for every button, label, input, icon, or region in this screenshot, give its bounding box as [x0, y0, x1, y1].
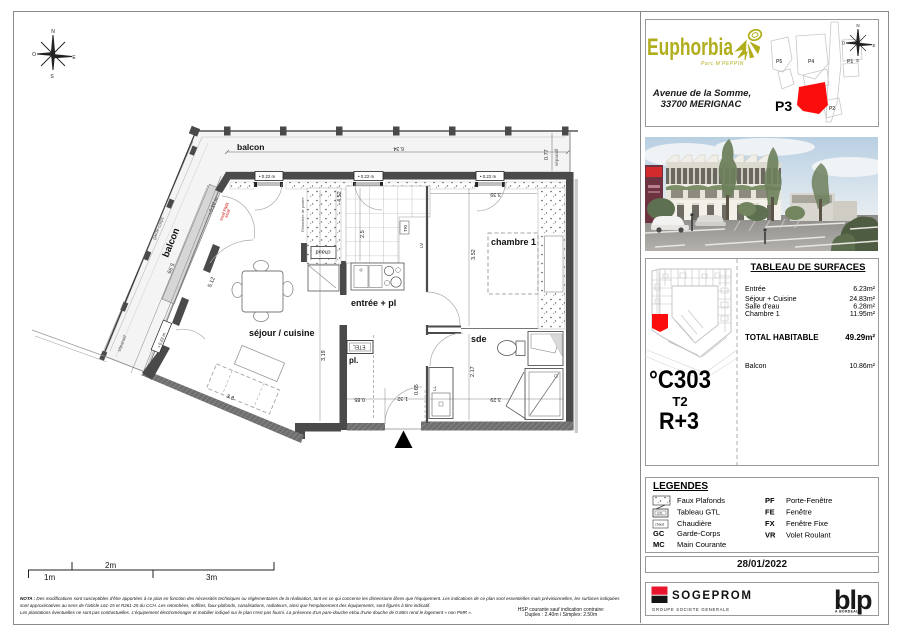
svg-text:PF: PF [765, 496, 775, 505]
svg-text:Faux Plafonds: Faux Plafonds [677, 496, 725, 505]
svg-text:SOGEPROM: SOGEPROM [672, 590, 753, 602]
svg-text:Volet Roulant: Volet Roulant [786, 531, 832, 540]
svg-text:LV: LV [419, 243, 424, 248]
svg-text:FX: FX [765, 519, 775, 528]
svg-text:• 0.22 m: • 0.22 m [480, 174, 497, 179]
svg-text:6.34: 6.34 [393, 145, 404, 151]
svg-text:Balcon: Balcon [745, 363, 767, 370]
svg-text:ETEL: ETEL [353, 343, 366, 349]
svg-text:4.52: 4.52 [337, 191, 343, 202]
svg-text:O: O [842, 41, 846, 46]
svg-text:chaud: chaud [316, 249, 331, 255]
svg-text:R+3: R+3 [659, 408, 699, 435]
svg-text:3.39: 3.39 [490, 191, 501, 197]
svg-text:E: E [872, 43, 875, 48]
svg-text:6.23m²: 6.23m² [853, 286, 875, 293]
svg-text:Parc M'PEPPIN: Parc M'PEPPIN [701, 61, 744, 67]
svg-text:Porte-Fenêtre: Porte-Fenêtre [786, 496, 832, 505]
svg-text:TOTAL HABITABLE: TOTAL HABITABLE [745, 333, 819, 342]
svg-text:10.86m²: 10.86m² [849, 363, 875, 370]
svg-text:49.29m²: 49.29m² [845, 333, 875, 342]
svg-text:Tableau GTL: Tableau GTL [677, 508, 720, 517]
svg-text:P4: P4 [808, 59, 814, 65]
svg-text:S: S [50, 74, 54, 80]
svg-text:N: N [856, 23, 859, 28]
svg-text:Avenue de la Somme,: Avenue de la Somme, [652, 88, 751, 99]
svg-text:°C303: °C303 [649, 366, 711, 394]
svg-text:Séjour + Cuisine: Séjour + Cuisine [745, 296, 797, 303]
svg-text:Main Courante: Main Courante [677, 540, 726, 549]
svg-text:Fenêtre: Fenêtre [786, 508, 812, 517]
svg-text:Garde-Corps: Garde-Corps [677, 529, 721, 538]
svg-text:Salle d'eau: Salle d'eau [745, 304, 780, 311]
svg-text:0.65: 0.65 [414, 384, 420, 395]
svg-text:2m: 2m [105, 561, 116, 570]
svg-text:E: E [72, 55, 76, 61]
svg-text:O: O [32, 52, 36, 58]
svg-text:S: S [856, 58, 859, 63]
svg-text:1.32: 1.32 [397, 395, 408, 401]
svg-text:N: N [51, 29, 55, 35]
svg-text:TABLEAU DE SURFACES: TABLEAU DE SURFACES [751, 262, 866, 273]
svg-text:entrée + pl: entrée + pl [351, 298, 396, 308]
svg-text:11.95m²: 11.95m² [850, 311, 876, 318]
svg-text:2.17: 2.17 [470, 366, 476, 377]
svg-text:TRI: TRI [403, 225, 408, 232]
svg-text:P1: P1 [847, 59, 853, 65]
svg-text:GTL: GTL [657, 512, 663, 516]
svg-text:3.52: 3.52 [471, 249, 477, 260]
svg-text:LEGENDES: LEGENDES [653, 481, 708, 492]
svg-text:• 0.22 m: • 0.22 m [358, 174, 375, 179]
svg-text:MC: MC [653, 540, 665, 549]
svg-text:VR: VR [765, 531, 776, 540]
svg-text:T2: T2 [672, 394, 687, 409]
svg-text:24.83m²: 24.83m² [849, 296, 875, 303]
svg-text:sde: sde [471, 334, 487, 344]
svg-text:GC: GC [653, 529, 665, 538]
svg-text:• 0.22 m: • 0.22 m [259, 174, 276, 179]
svg-text:séjour / cuisine: séjour / cuisine [249, 328, 315, 338]
svg-text:P5: P5 [776, 59, 782, 65]
svg-text:33700 MERIGNAC: 33700 MERIGNAC [661, 99, 742, 110]
svg-text:Euphorbia: Euphorbia [647, 34, 733, 61]
svg-text:5.12: 5.12 [207, 276, 217, 288]
svg-text:FE: FE [765, 508, 775, 517]
svg-text:6.28m²: 6.28m² [853, 304, 875, 311]
svg-text:chaud: chaud [655, 523, 664, 527]
svg-text:LL: LL [432, 385, 437, 391]
svg-text:Retombée de poutre: Retombée de poutre [301, 197, 305, 232]
svg-text:chambre 1: chambre 1 [491, 237, 536, 247]
svg-text:balcon: balcon [237, 142, 264, 152]
svg-text:3.19: 3.19 [321, 350, 327, 361]
svg-text:Fenêtre Fixe: Fenêtre Fixe [786, 519, 828, 528]
svg-text:P2: P2 [829, 106, 835, 112]
svg-text:3.8: 3.8 [225, 394, 234, 402]
svg-text:0.85: 0.85 [354, 396, 365, 402]
svg-text:3.29: 3.29 [490, 396, 501, 402]
svg-text:2.5: 2.5 [360, 230, 366, 238]
svg-text:0.77: 0.77 [544, 149, 550, 160]
svg-text:séparatif: séparatif [554, 148, 559, 166]
svg-text:pl.: pl. [349, 356, 358, 365]
svg-text:P3: P3 [775, 98, 792, 114]
svg-text:Entrée: Entrée [745, 286, 766, 293]
svg-text:Chaudière: Chaudière [677, 519, 712, 528]
svg-text:GROUPE SOCIETE GENERALE: GROUPE SOCIETE GENERALE [652, 607, 730, 612]
svg-text:3m: 3m [206, 573, 217, 582]
svg-text:A BORDEAUX: A BORDEAUX [835, 610, 862, 614]
svg-text:1m: 1m [44, 573, 55, 582]
svg-text:Chambre 1: Chambre 1 [745, 311, 780, 318]
